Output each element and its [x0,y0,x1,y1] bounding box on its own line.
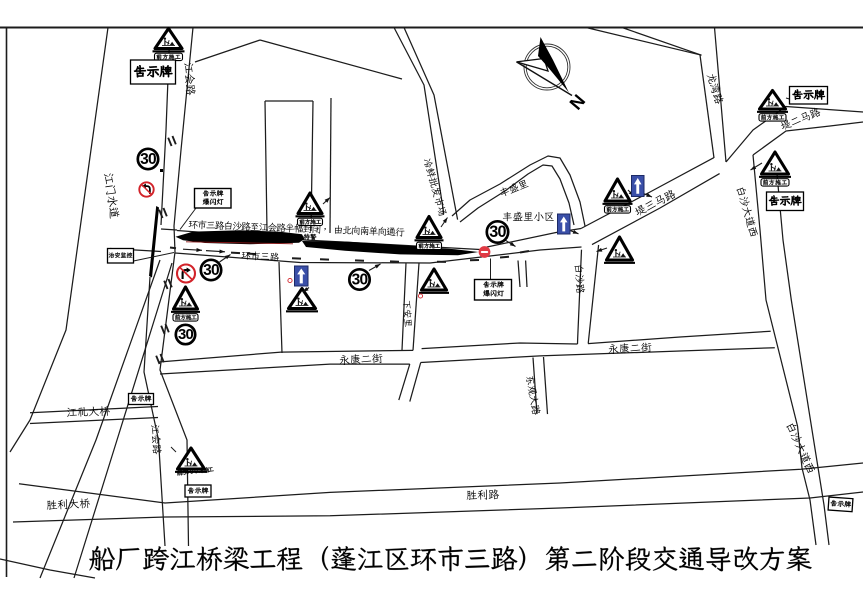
svg-text:30: 30 [352,271,368,288]
svg-text:30: 30 [140,151,156,168]
svg-text:30: 30 [489,223,506,241]
svg-text:30: 30 [203,262,219,279]
svg-text:30: 30 [178,327,193,343]
